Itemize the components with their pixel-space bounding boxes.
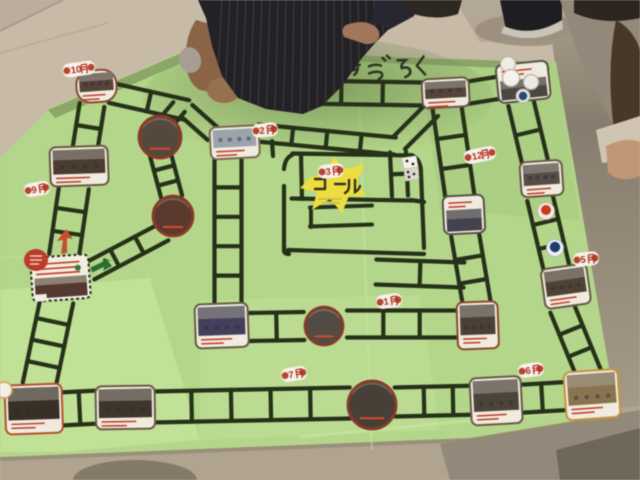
svg-text:10: 10 <box>70 64 82 76</box>
svg-text:2: 2 <box>259 125 265 136</box>
svg-text:3: 3 <box>325 166 331 177</box>
